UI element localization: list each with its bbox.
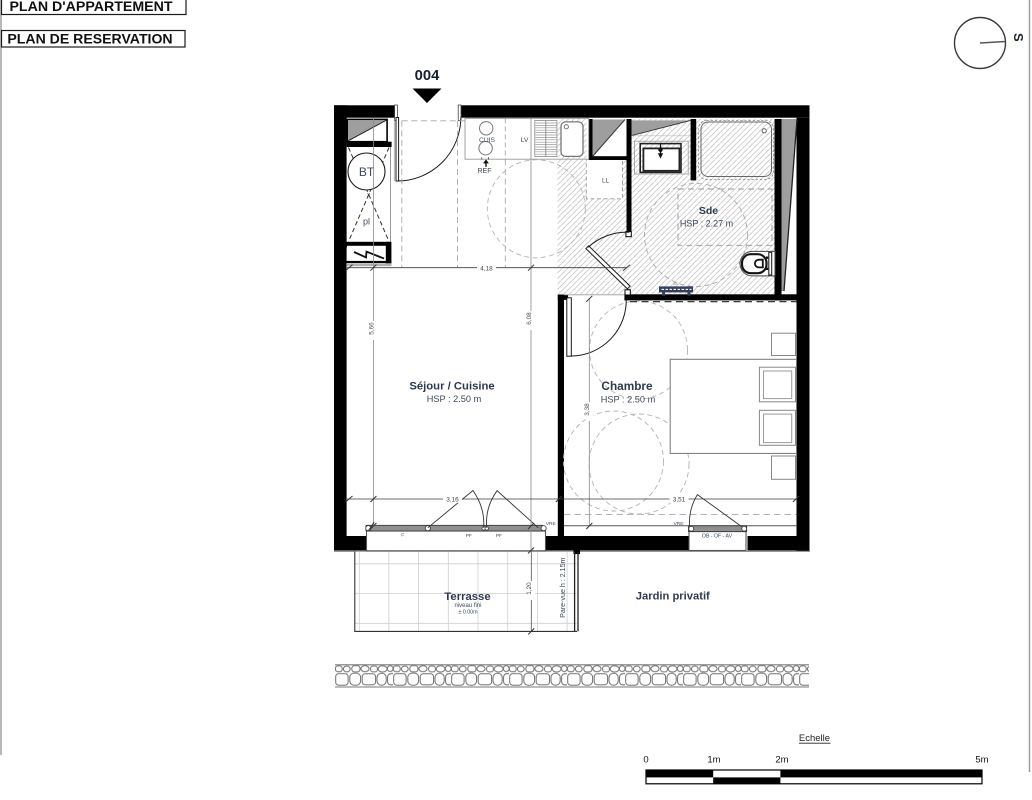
svg-text:Chambre: Chambre <box>601 379 653 393</box>
svg-text:3,51: 3,51 <box>673 497 686 504</box>
svg-text:ss: ss <box>673 281 678 286</box>
svg-text:4,18: 4,18 <box>480 265 493 272</box>
svg-text:LL: LL <box>602 178 610 185</box>
svg-text:x: x <box>367 193 370 199</box>
svg-text:1,20: 1,20 <box>526 582 533 595</box>
svg-text:Séjour / Cuisine: Séjour / Cuisine <box>409 381 494 393</box>
svg-text:± 0.00m: ± 0.00m <box>458 609 478 615</box>
svg-text:CUIS: CUIS <box>479 137 496 144</box>
svg-text:3,16: 3,16 <box>446 497 459 504</box>
svg-text:Echelle: Echelle <box>799 733 830 744</box>
svg-text:Jardin privatif: Jardin privatif <box>636 590 710 602</box>
svg-text:F: F <box>401 533 404 539</box>
svg-text:2m: 2m <box>775 755 788 766</box>
svg-text:HSP : 2.50 m: HSP : 2.50 m <box>601 395 656 405</box>
svg-text:PLAN D'APPARTEMENT: PLAN D'APPARTEMENT <box>9 0 172 15</box>
svg-text:Sde: Sde <box>699 205 718 217</box>
svg-text:3,38: 3,38 <box>584 403 591 416</box>
svg-text:OB - OF - AV: OB - OF - AV <box>702 533 733 539</box>
svg-text:1m: 1m <box>707 755 720 766</box>
svg-text:Terrasse: Terrasse <box>444 591 490 603</box>
svg-text:BT: BT <box>359 165 375 179</box>
svg-text:PLAN DE RESERVATION: PLAN DE RESERVATION <box>7 31 172 47</box>
svg-text:VRE: VRE <box>546 521 556 527</box>
svg-text:004: 004 <box>415 68 440 84</box>
svg-text:6,08: 6,08 <box>526 312 533 325</box>
svg-text:PF: PF <box>496 533 502 539</box>
svg-text:pl: pl <box>363 217 370 227</box>
svg-text:REF: REF <box>478 168 492 175</box>
svg-text:S: S <box>1011 33 1026 42</box>
svg-text:HSP : 2.27 m: HSP : 2.27 m <box>680 219 733 229</box>
svg-text:Pare-vue h : 2.15m: Pare-vue h : 2.15m <box>559 557 567 617</box>
svg-text:5m: 5m <box>975 755 988 766</box>
svg-text:PF: PF <box>466 533 472 539</box>
svg-text:HSP : 2.50 m: HSP : 2.50 m <box>427 394 482 404</box>
svg-text:LV: LV <box>521 137 529 144</box>
svg-text:5,66: 5,66 <box>368 322 375 335</box>
svg-text:0: 0 <box>643 755 648 766</box>
svg-text:niveau fini: niveau fini <box>454 603 481 609</box>
